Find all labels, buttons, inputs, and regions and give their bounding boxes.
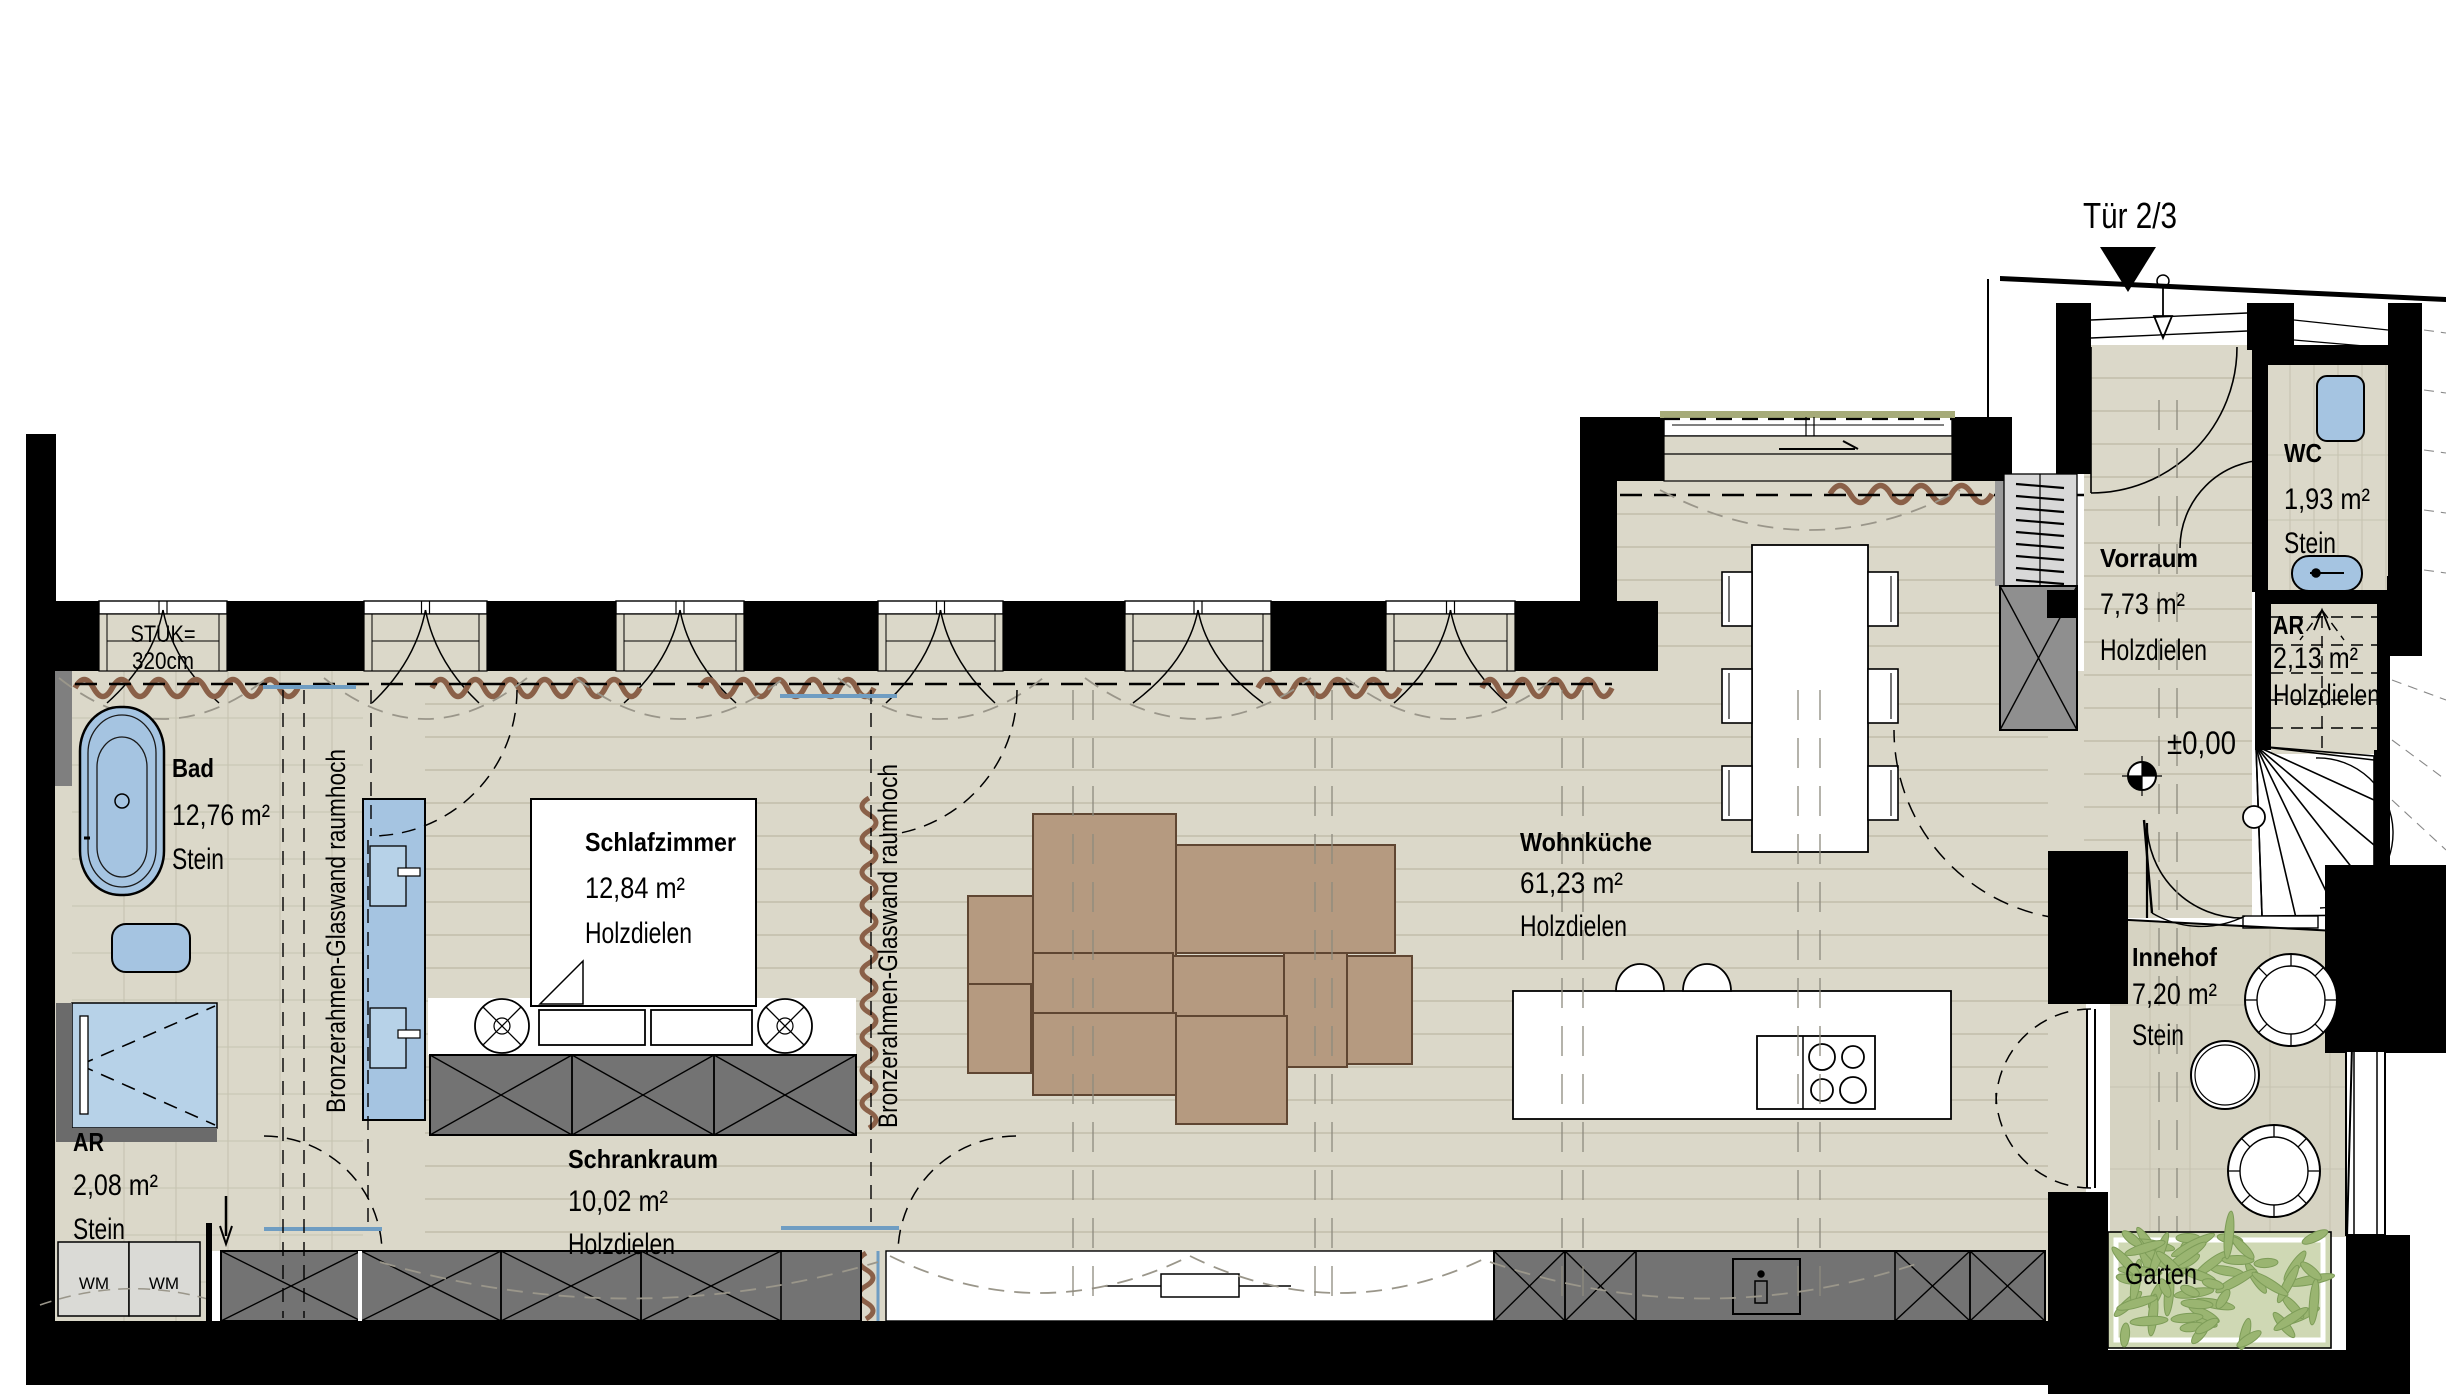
svg-text:12,84 m²: 12,84 m² <box>585 872 685 905</box>
svg-text:Schlafzimmer: Schlafzimmer <box>585 827 736 857</box>
svg-text:Innehof: Innehof <box>2132 942 2217 972</box>
svg-text:Bad: Bad <box>172 753 214 783</box>
svg-text:Holzdielen: Holzdielen <box>585 917 692 950</box>
svg-text:AR: AR <box>2273 610 2304 640</box>
svg-text:61,23 m²: 61,23 m² <box>1520 867 1623 900</box>
svg-text:12,76 m²: 12,76 m² <box>172 799 270 832</box>
svg-text:1,93 m²: 1,93 m² <box>2284 483 2370 516</box>
svg-text:Stein: Stein <box>172 843 224 876</box>
svg-text:STUK=: STUK= <box>131 621 196 648</box>
svg-text:Tür 2/3: Tür 2/3 <box>2083 195 2177 236</box>
svg-text:Holzdielen: Holzdielen <box>2273 679 2380 712</box>
svg-text:Bronzerahmen-Glaswand raumhoch: Bronzerahmen-Glaswand raumhoch <box>873 764 903 1128</box>
svg-text:Schrankraum: Schrankraum <box>568 1144 718 1174</box>
svg-text:Wohnküche: Wohnküche <box>1520 827 1652 857</box>
svg-text:Holzdielen: Holzdielen <box>1520 910 1627 943</box>
svg-text:320cm: 320cm <box>132 648 194 675</box>
svg-text:AR: AR <box>73 1127 104 1157</box>
svg-text:2,13 m²: 2,13 m² <box>2273 642 2358 675</box>
svg-text:Garten: Garten <box>2125 1258 2197 1291</box>
svg-text:Vorraum: Vorraum <box>2100 543 2198 573</box>
svg-text:Bronzerahmen-Glaswand raumhoch: Bronzerahmen-Glaswand raumhoch <box>321 749 351 1113</box>
svg-text:Holzdielen: Holzdielen <box>568 1228 675 1261</box>
svg-text:Holzdielen: Holzdielen <box>2100 634 2207 667</box>
svg-text:WC: WC <box>2284 438 2322 468</box>
svg-text:Stein: Stein <box>73 1213 125 1246</box>
svg-text:2,08 m²: 2,08 m² <box>73 1169 158 1202</box>
svg-text:10,02 m²: 10,02 m² <box>568 1185 668 1218</box>
svg-text:Stein: Stein <box>2132 1019 2184 1052</box>
svg-text:7,20 m²: 7,20 m² <box>2132 978 2217 1011</box>
svg-text:7,73 m²: 7,73 m² <box>2100 588 2185 621</box>
svg-text:Stein: Stein <box>2284 527 2336 560</box>
svg-text:±0,00: ±0,00 <box>2167 725 2236 761</box>
